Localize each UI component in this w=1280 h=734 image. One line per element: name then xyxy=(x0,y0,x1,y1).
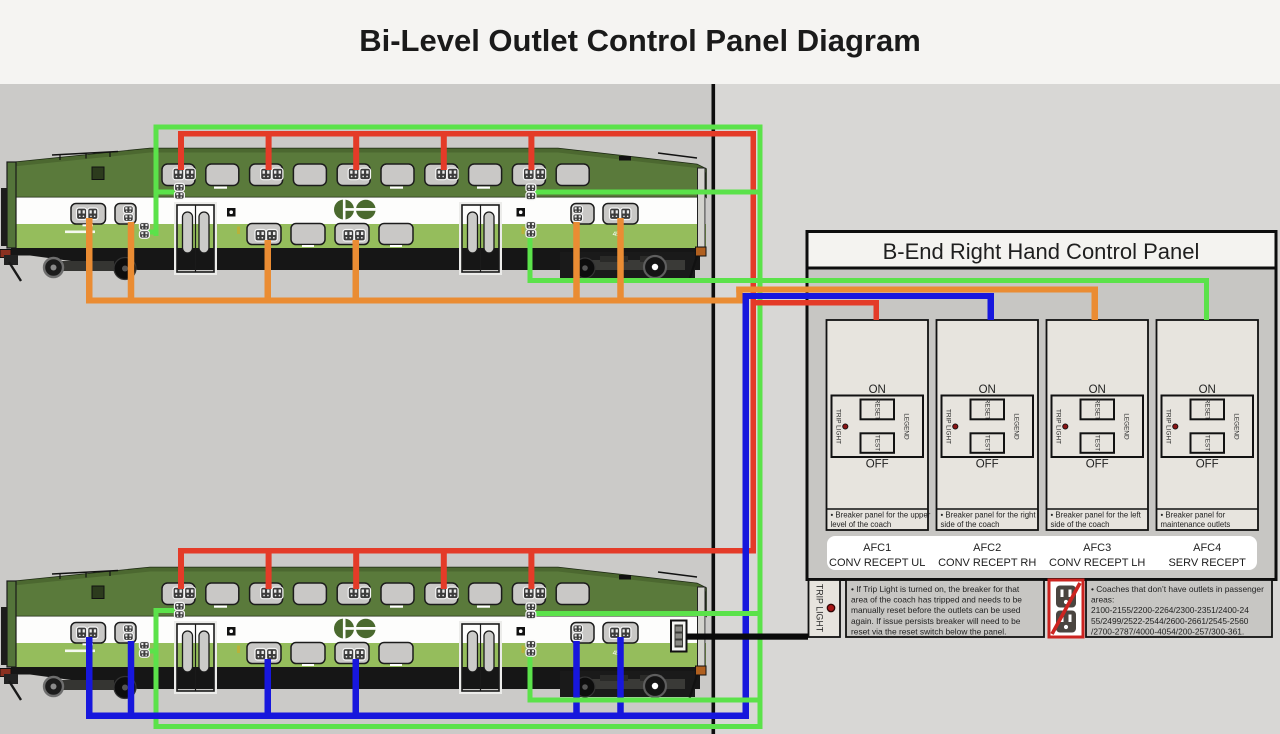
svg-text:• Breaker panel for the left: • Breaker panel for the left xyxy=(1051,511,1142,520)
svg-text:TEST: TEST xyxy=(1094,435,1101,451)
svg-text:TEST: TEST xyxy=(984,435,991,451)
svg-text:TEST: TEST xyxy=(1204,435,1211,451)
svg-text:reset via the reset switch bel: reset via the reset switch below the pan… xyxy=(851,626,1007,636)
svg-text:AFC1: AFC1 xyxy=(863,542,891,554)
svg-text:OFF: OFF xyxy=(1086,459,1109,471)
svg-text:TRIP LIGHT: TRIP LIGHT xyxy=(834,409,841,444)
svg-text:LEGEND: LEGEND xyxy=(902,413,909,440)
svg-text:LEGEND: LEGEND xyxy=(1122,413,1129,440)
svg-text:RESET: RESET xyxy=(874,399,881,420)
svg-text:TRIP LIGHT: TRIP LIGHT xyxy=(1054,409,1061,444)
svg-text:maintenance outlets: maintenance outlets xyxy=(1161,520,1231,529)
svg-text:RESET: RESET xyxy=(984,399,991,420)
svg-text:LEGEND: LEGEND xyxy=(1012,413,1019,440)
svg-text:RESET: RESET xyxy=(1204,399,1211,420)
svg-text:/2700-2787/4000-4054/200-257/3: /2700-2787/4000-4054/200-257/300-361. xyxy=(1091,626,1244,636)
svg-text:• Breaker panel for the upper: • Breaker panel for the upper xyxy=(831,511,931,520)
svg-text:LEGEND: LEGEND xyxy=(1232,413,1239,440)
svg-text:area of the coach has tripped: area of the coach has tripped and needs … xyxy=(851,595,1022,605)
svg-text:Bi-Level Outlet Control Panel: Bi-Level Outlet Control Panel Diagram xyxy=(359,23,921,58)
svg-text:2100-2155/2200-2264/2300-2351/: 2100-2155/2200-2264/2300-2351/2400-24 xyxy=(1091,605,1249,615)
svg-text:TRIP LIGHT: TRIP LIGHT xyxy=(1164,409,1171,444)
svg-text:AFC3: AFC3 xyxy=(1083,542,1111,554)
svg-text:TEST: TEST xyxy=(874,435,881,451)
svg-text:AFC2: AFC2 xyxy=(973,542,1001,554)
svg-text:OFF: OFF xyxy=(866,459,889,471)
svg-text:again. If issue persists break: again. If issue persists breaker will ne… xyxy=(851,616,1021,626)
svg-text:B-End Right Hand Control Panel: B-End Right Hand Control Panel xyxy=(883,239,1200,264)
svg-text:ON: ON xyxy=(1199,384,1216,396)
svg-text:CONV RECEPT UL: CONV RECEPT UL xyxy=(829,557,925,569)
svg-text:side of the coach: side of the coach xyxy=(941,520,1000,529)
svg-text:areas:: areas: xyxy=(1091,595,1114,605)
svg-text:AFC4: AFC4 xyxy=(1193,542,1221,554)
svg-text:SERV RECEPT: SERV RECEPT xyxy=(1168,557,1246,569)
svg-text:level of the coach: level of the coach xyxy=(831,520,892,529)
svg-text:side of the coach: side of the coach xyxy=(1051,520,1110,529)
svg-text:• If Trip Light is turned on,: • If Trip Light is turned on, the breake… xyxy=(851,584,1020,594)
svg-text:CONV RECEPT LH: CONV RECEPT LH xyxy=(1049,557,1145,569)
svg-text:• Breaker panel for: • Breaker panel for xyxy=(1161,511,1226,520)
svg-text:RESET: RESET xyxy=(1094,399,1101,420)
svg-text:TRIP LIGHT: TRIP LIGHT xyxy=(944,409,951,444)
svg-text:manually reset before the outl: manually reset before the outlets can be… xyxy=(851,605,1021,615)
svg-text:ON: ON xyxy=(869,384,886,396)
svg-text:ON: ON xyxy=(1089,384,1106,396)
svg-text:CONV RECEPT RH: CONV RECEPT RH xyxy=(938,557,1036,569)
svg-text:• Breaker panel for the right: • Breaker panel for the right xyxy=(941,511,1037,520)
svg-text:OFF: OFF xyxy=(976,459,999,471)
svg-text:OFF: OFF xyxy=(1196,459,1219,471)
svg-text:TRIP LIGHT: TRIP LIGHT xyxy=(815,584,825,633)
svg-text:• Coaches that don’t have outl: • Coaches that don’t have outlets in pas… xyxy=(1091,584,1264,594)
svg-text:55/2499/2522-2544/2600-2661/25: 55/2499/2522-2544/2600-2661/2545-2560 xyxy=(1091,616,1249,626)
svg-text:ON: ON xyxy=(979,384,996,396)
